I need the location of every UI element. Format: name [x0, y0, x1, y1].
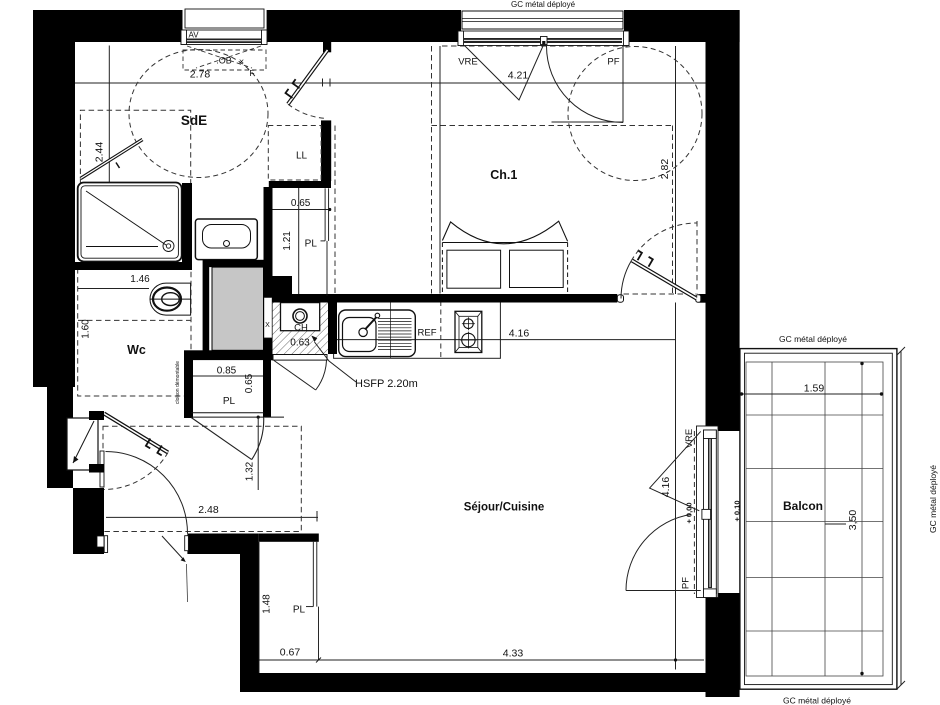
svg-text:GC métal déployé: GC métal déployé [928, 465, 938, 533]
svg-text:4.16: 4.16 [509, 328, 530, 340]
svg-text:3,50: 3,50 [847, 510, 859, 531]
svg-text:Séjour/Cuisine: Séjour/Cuisine [464, 502, 545, 514]
svg-text:1.59: 1.59 [804, 383, 825, 395]
svg-text:GC métal déployé: GC métal déployé [511, 0, 576, 9]
svg-text:0.65: 0.65 [291, 198, 311, 209]
svg-text:0.67: 0.67 [280, 647, 301, 659]
svg-text:HSFP 2.20m: HSFP 2.20m [355, 378, 418, 390]
svg-text:1.21: 1.21 [282, 231, 293, 251]
svg-text:4.16: 4.16 [660, 477, 672, 498]
svg-text:2.78: 2.78 [190, 69, 211, 81]
svg-text:PF: PF [607, 57, 619, 68]
svg-text:Ch.1: Ch.1 [490, 168, 517, 182]
svg-text:+ 0.10: + 0.10 [733, 500, 742, 521]
svg-text:.OB: .OB [216, 56, 232, 66]
svg-text:VRE: VRE [458, 57, 478, 68]
svg-text:GC métal déployé: GC métal déployé [779, 334, 847, 344]
svg-text:VRE: VRE [684, 429, 695, 449]
svg-text:2.82: 2.82 [659, 159, 671, 180]
svg-text:Wc: Wc [127, 343, 146, 357]
svg-text:1.48: 1.48 [262, 594, 273, 614]
svg-text:F: F [249, 68, 254, 78]
svg-text:GC métal déployé: GC métal déployé [783, 696, 851, 705]
svg-text:Balcon: Balcon [783, 499, 823, 513]
svg-text:cloison démontable: cloison démontable [175, 361, 181, 404]
svg-text:1.46: 1.46 [130, 274, 150, 285]
svg-text:PL: PL [223, 396, 236, 407]
svg-text:AV: AV [189, 31, 200, 40]
svg-text:PL: PL [293, 605, 306, 616]
svg-text:REF: REF [418, 328, 437, 339]
svg-text:CH: CH [294, 323, 308, 334]
svg-text:2.48: 2.48 [198, 504, 219, 516]
svg-text:SdE: SdE [181, 113, 207, 128]
svg-text:PL: PL [305, 239, 318, 250]
svg-text:LL: LL [296, 151, 308, 162]
svg-text:0.65: 0.65 [244, 373, 255, 393]
svg-text:4.21: 4.21 [508, 70, 529, 82]
svg-text:1.32: 1.32 [245, 461, 256, 481]
svg-text:PF: PF [681, 577, 692, 589]
svg-text:X: X [265, 322, 270, 329]
svg-text:4.33: 4.33 [503, 648, 524, 660]
svg-text:0.63: 0.63 [290, 338, 310, 349]
svg-text:1.60: 1.60 [81, 319, 92, 339]
svg-text:0.85: 0.85 [217, 366, 237, 377]
svg-text:+ 0,00: + 0,00 [685, 502, 694, 523]
svg-text:2.44: 2.44 [94, 142, 106, 163]
svg-text:×: × [239, 57, 244, 67]
